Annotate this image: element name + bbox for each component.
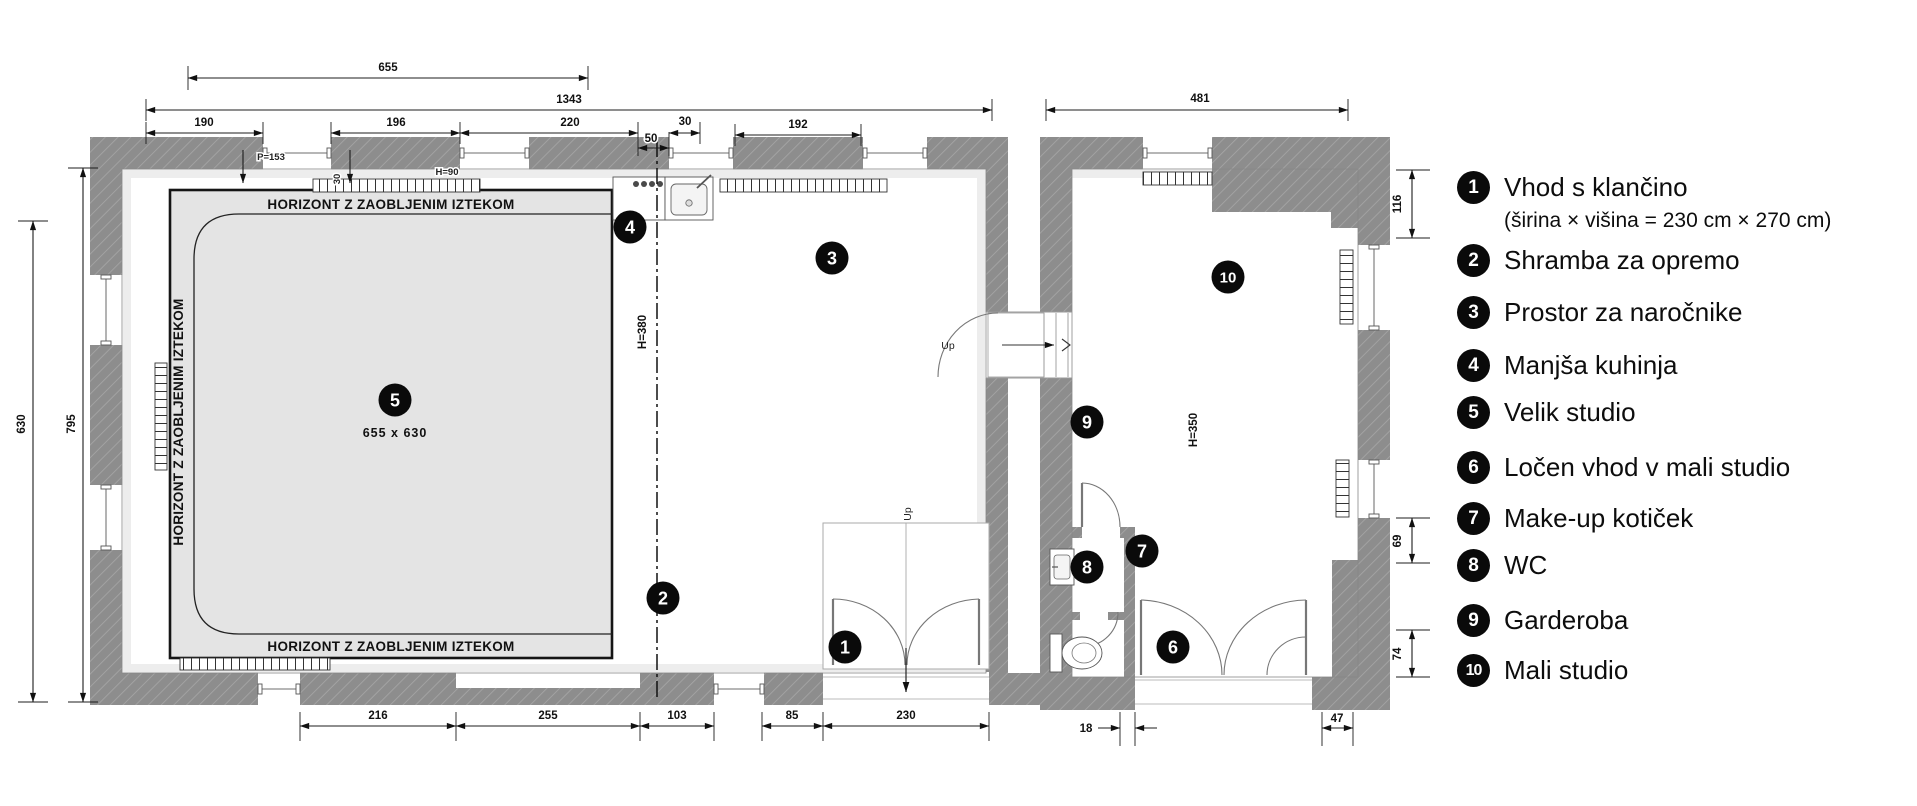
dimensions-left: 630 795 (16, 168, 98, 702)
height-label-h350: H=350 (1188, 413, 1200, 447)
legend-label-1: Vhod s klančino (1504, 172, 1688, 203)
legend-item-8: 8 WC (1457, 549, 1547, 582)
plan-marker-7: 7 (1126, 535, 1159, 568)
legend-badge-3: 3 (1457, 296, 1490, 329)
legend-item-2: 2 Shramba za opremo (1457, 244, 1740, 277)
floor-plan-canvas: HORIZONT Z ZAOBLJENIM IZTEKOM HORIZONT Z… (0, 0, 1917, 806)
dim-192: 192 (788, 119, 807, 131)
legend-item-1: 1 Vhod s klančino (1457, 171, 1688, 204)
legend-badge-9: 9 (1457, 604, 1490, 637)
dimensions-right: 116 69 74 (1392, 170, 1430, 677)
svg-text:3: 3 (827, 249, 837, 269)
dim-220: 220 (560, 117, 579, 129)
washbasin-icon (1050, 549, 1074, 585)
dim-630: 630 (16, 414, 28, 433)
label-h90: H=90 (436, 167, 459, 178)
legend-label-7: Make-up kotiček (1504, 503, 1693, 534)
plan-marker-2: 2 (647, 582, 680, 615)
dim-481: 481 (1190, 93, 1210, 105)
dim-85: 85 (786, 710, 799, 722)
cyclorama-label-top: HORIZONT Z ZAOBLJENIM IZTEKOM (267, 197, 514, 212)
cyclorama-label-left: HORIZONT Z ZAOBLJENIM IZTEKOM (171, 298, 186, 545)
dim-190: 190 (194, 117, 213, 129)
dim-69: 69 (1392, 535, 1404, 548)
dim-50: 50 (645, 133, 658, 145)
legend-badge-2: 2 (1457, 244, 1490, 277)
dim-655: 655 (378, 62, 398, 74)
dim-30-vertical: 30 (332, 174, 343, 185)
dim-18: 18 (1080, 723, 1093, 735)
height-label-h380: H=380 (637, 315, 649, 349)
legend-item-7: 7 Make-up kotiček (1457, 502, 1693, 535)
plan-marker-8: 8 (1071, 551, 1104, 584)
svg-text:4: 4 (625, 218, 635, 238)
plan-marker-5: 5 (379, 384, 412, 417)
legend-label-9: Garderoba (1504, 605, 1628, 636)
plan-marker-1: 1 (829, 631, 862, 664)
window-label-p153: P=153 (257, 152, 285, 163)
legend-label-5: Velik studio (1504, 397, 1636, 428)
legend-sublabel-1: (širina × višina = 230 cm × 270 cm) (1504, 209, 1831, 233)
legend-item-9: 9 Garderoba (1457, 604, 1628, 637)
legend-badge-10: 10 (1457, 654, 1490, 687)
legend-label-8: WC (1504, 550, 1547, 581)
dim-795: 795 (66, 414, 78, 434)
dim-255: 255 (538, 710, 558, 722)
dim-47: 47 (1331, 713, 1344, 725)
svg-text:7: 7 (1137, 542, 1147, 562)
dim-116: 116 (1392, 195, 1404, 214)
legend-badge-8: 8 (1457, 549, 1490, 582)
plan-marker-3: 3 (816, 242, 849, 275)
cyclorama-label-bottom: HORIZONT Z ZAOBLJENIM IZTEKOM (267, 639, 514, 654)
svg-text:2: 2 (658, 589, 668, 609)
dim-196: 196 (386, 117, 405, 129)
dim-74: 74 (1392, 647, 1404, 660)
legend-label-3: Prostor za naročnike (1504, 297, 1742, 328)
plan-marker-10: 10 (1212, 261, 1245, 294)
legend-label-6: Ločen vhod v mali studio (1504, 452, 1790, 483)
legend-badge-7: 7 (1457, 502, 1490, 535)
up-label-entrance: Up (902, 507, 914, 521)
dimensions-bottom: 216 255 103 85 230 18 47 (300, 710, 1353, 746)
plan-marker-9: 9 (1071, 406, 1104, 439)
legend-item-5: 5 Velik studio (1457, 396, 1636, 429)
svg-text:10: 10 (1220, 270, 1237, 287)
legend-badge-1: 1 (1457, 171, 1490, 204)
legend-item-3: 3 Prostor za naročnike (1457, 296, 1742, 329)
legend-item-10: 10 Mali studio (1457, 654, 1628, 687)
dim-1343: 1343 (556, 94, 582, 106)
plan-marker-6: 6 (1157, 631, 1190, 664)
svg-text:5: 5 (390, 391, 400, 411)
svg-text:1: 1 (840, 638, 850, 658)
cyclorama: HORIZONT Z ZAOBLJENIM IZTEKOM HORIZONT Z… (170, 190, 612, 658)
legend-item-4: 4 Manjša kuhinja (1457, 349, 1677, 382)
dim-30: 30 (679, 116, 692, 128)
legend-badge-4: 4 (1457, 349, 1490, 382)
plan-marker-4: 4 (614, 211, 647, 244)
dim-103: 103 (667, 710, 686, 722)
sink-icon (665, 175, 713, 220)
toilet-icon (1050, 634, 1102, 672)
svg-text:8: 8 (1082, 558, 1092, 578)
legend-badge-6: 6 (1457, 451, 1490, 484)
legend-label-4: Manjša kuhinja (1504, 350, 1677, 381)
legend-item-6: 6 Ločen vhod v mali studio (1457, 451, 1790, 484)
up-label-passage: Up (941, 340, 955, 352)
legend-badge-5: 5 (1457, 396, 1490, 429)
legend-label-10: Mali studio (1504, 655, 1628, 686)
dim-230: 230 (896, 710, 915, 722)
svg-text:6: 6 (1168, 638, 1178, 658)
studio-size-label: 655 x 630 (363, 426, 428, 440)
legend-label-2: Shramba za opremo (1504, 245, 1740, 276)
dim-216: 216 (368, 710, 387, 722)
svg-text:9: 9 (1082, 413, 1092, 433)
